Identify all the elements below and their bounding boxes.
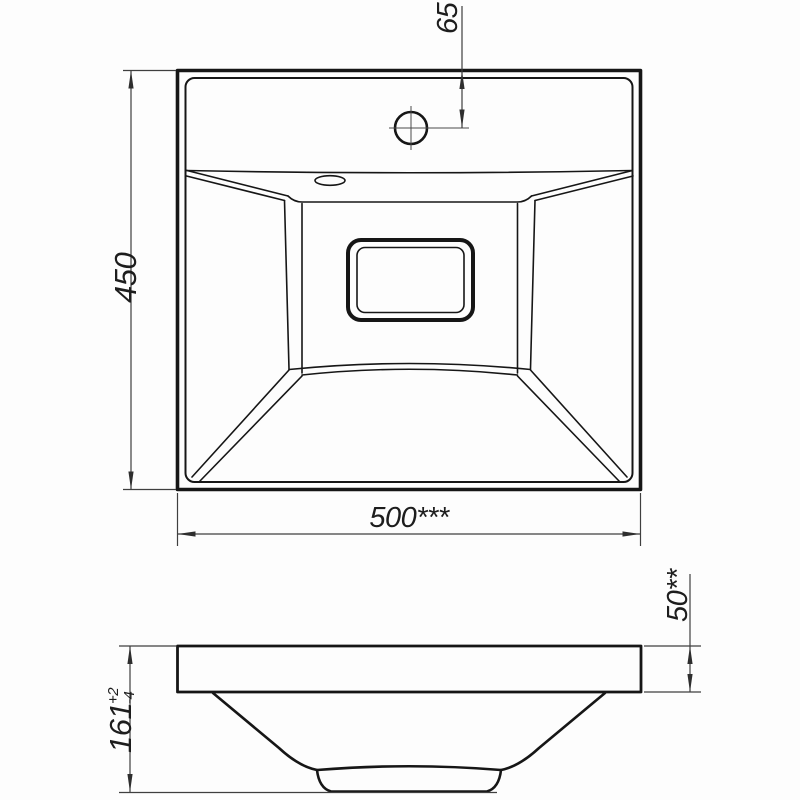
- rim-profile: [178, 646, 642, 692]
- arrowhead-up: [687, 646, 692, 664]
- side-view: [178, 646, 642, 792]
- arrowhead-down: [687, 674, 692, 692]
- dimension-label-height: 161: [103, 703, 138, 753]
- tolerance-minus-label: -4: [121, 692, 138, 704]
- dimension-label-height-group: 161 +2 -4: [103, 687, 138, 753]
- dimension-height-161: 161 +2 -4: [103, 646, 497, 793]
- sink-inner-edge: [186, 78, 633, 482]
- basin-slope-right-inner: [518, 376, 620, 482]
- dimension-label-faucet-offset: 65: [432, 1, 464, 34]
- deck-chamfer-right-inner: [535, 176, 633, 201]
- deck-chamfer-right-outer: [532, 171, 633, 197]
- drain-opening-inner: [357, 248, 464, 313]
- basin-wall-left-outer: [285, 201, 290, 370]
- dimension-label-width: 500***: [369, 502, 450, 534]
- drain-foot-profile: [317, 770, 501, 792]
- basin-slope-left-outer: [192, 370, 289, 477]
- drain-opening-outer: [348, 240, 473, 320]
- basin-rim-back-edge: [288, 196, 532, 202]
- arrowhead-down: [459, 110, 464, 128]
- basin-bottom-edge-inner: [302, 369, 518, 375]
- sink-technical-drawing: 450 500*** 65 161 +2 -4 50**: [0, 0, 800, 800]
- dimension-label-depth: 450: [108, 253, 143, 303]
- arrowhead-up: [127, 646, 132, 664]
- drawing-sheet: 450 500*** 65 161 +2 -4 50**: [0, 0, 800, 800]
- bowl-profile: [213, 693, 605, 770]
- dimension-rim-height-50: 50**: [644, 567, 701, 692]
- basin-slope-right-outer: [531, 370, 628, 477]
- dimension-width-500: 500***: [178, 493, 641, 546]
- deck-front-edge: [187, 171, 633, 173]
- overflow-hole: [315, 176, 345, 186]
- arrowhead-left: [178, 531, 196, 536]
- arrowhead-up: [459, 71, 464, 89]
- basin-slope-left-inner: [200, 376, 303, 482]
- dimension-depth-450: 450: [108, 71, 176, 490]
- deck-chamfer-left-outer: [187, 171, 288, 197]
- arrowhead-up: [128, 71, 133, 89]
- sink-outer-edge: [178, 71, 641, 490]
- basin-wall-right-outer: [531, 201, 536, 370]
- deck-chamfer-left-inner: [187, 176, 285, 201]
- dimension-label-rim-height: 50**: [662, 567, 694, 622]
- arrowhead-right: [623, 531, 641, 536]
- arrowhead-down: [128, 472, 133, 490]
- dimension-faucet-offset-65: 65: [432, 1, 465, 128]
- top-view: [178, 71, 641, 490]
- arrowhead-down: [127, 774, 132, 792]
- tolerance-plus-label: +2: [105, 687, 122, 704]
